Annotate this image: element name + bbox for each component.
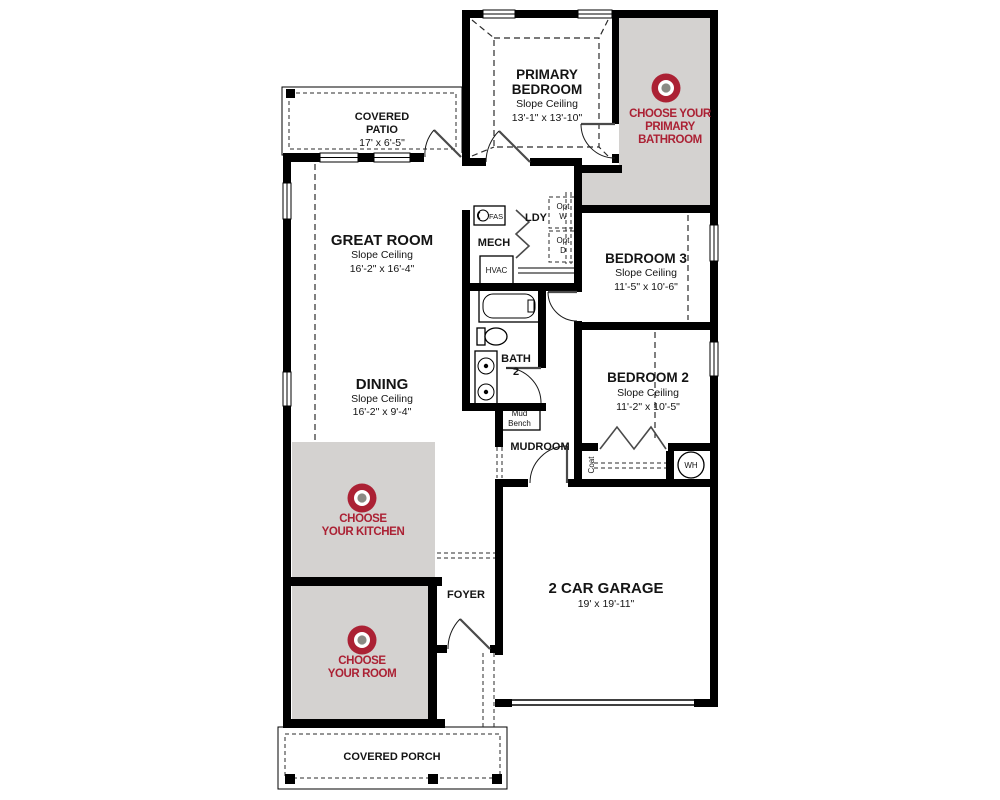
garage-name: 2 CAR GARAGE bbox=[548, 580, 663, 597]
bedroom3-name: BEDROOM 3 bbox=[605, 251, 687, 266]
dining-name: DINING bbox=[356, 376, 409, 393]
svg-text:Slope Ceiling: Slope Ceiling bbox=[351, 249, 413, 261]
svg-text:Slope Ceiling: Slope Ceiling bbox=[516, 98, 578, 110]
water-heater-label: WH bbox=[684, 461, 698, 470]
toilet-bowl bbox=[485, 328, 507, 345]
mud-bench-label: Mud bbox=[512, 409, 528, 418]
vanity bbox=[475, 351, 497, 408]
great-room-dims: 16'-2" x 16'-4" bbox=[350, 263, 415, 275]
bedroom2-label: BEDROOM 2 Slope Ceiling 11'-2" x 10'-5" bbox=[607, 370, 689, 413]
option-kitchen-text: CHOOSE bbox=[339, 513, 387, 525]
porch-post bbox=[285, 774, 295, 784]
covered-patio-name: COVERED bbox=[355, 111, 409, 123]
option-primary-bathroom-text: CHOOSE YOUR bbox=[629, 108, 712, 120]
svg-text:Bench: Bench bbox=[508, 419, 531, 428]
floor-plan-canvas: COVERED PATIO 17' x 6'-5" PRIMARY BEDROO… bbox=[0, 0, 1000, 800]
svg-text:YOUR ROOM: YOUR ROOM bbox=[328, 668, 397, 680]
dining-dims: 16'-2" x 9'-4" bbox=[353, 406, 412, 418]
bath2-door bbox=[506, 368, 541, 403]
svg-text:PATIO: PATIO bbox=[366, 124, 398, 136]
patio-post bbox=[286, 89, 295, 98]
garage-dims: 19' x 19'-11" bbox=[578, 598, 635, 610]
fixture-labels: FAS HVAC Opt W Opt D Mud Bench Coat WH bbox=[486, 202, 698, 473]
window bbox=[283, 372, 291, 406]
target-icon bbox=[348, 484, 377, 513]
garage-label: 2 CAR GARAGE 19' x 19'-11" bbox=[548, 580, 663, 610]
coat-closet-label: Coat bbox=[587, 456, 596, 474]
great-room-label: GREAT ROOM Slope Ceiling 16'-2" x 16'-4" bbox=[331, 232, 433, 275]
front-door bbox=[448, 619, 490, 649]
primary-bedroom-label: PRIMARY BEDROOM Slope Ceiling 13'-1" x 1… bbox=[512, 67, 583, 124]
primary-bathroom-door bbox=[581, 124, 615, 158]
svg-text:YOUR KITCHEN: YOUR KITCHEN bbox=[322, 526, 405, 538]
porch-post bbox=[428, 774, 438, 784]
floor-plan-svg: COVERED PATIO 17' x 6'-5" PRIMARY BEDROO… bbox=[0, 0, 1000, 800]
covered-porch-label: COVERED PORCH bbox=[343, 751, 440, 763]
covered-patio-dims: 17' x 6'-5" bbox=[359, 137, 405, 149]
opt-washer-label: Opt bbox=[557, 202, 571, 211]
svg-text:PRIMARY: PRIMARY bbox=[645, 121, 696, 133]
svg-text:BATHROOM: BATHROOM bbox=[638, 134, 702, 146]
bath2-fixtures bbox=[475, 290, 539, 408]
bedroom3-label: BEDROOM 3 Slope Ceiling 11'-5" x 10'-6" bbox=[605, 251, 687, 293]
porch-post bbox=[492, 774, 502, 784]
svg-text:Slope Ceiling: Slope Ceiling bbox=[351, 393, 413, 405]
bedroom2-name: BEDROOM 2 bbox=[607, 370, 689, 385]
bedroom2-dims: 11'-2" x 10'-5" bbox=[616, 401, 680, 413]
mudroom-label: MUDROOM bbox=[510, 441, 569, 453]
bedroom3-door bbox=[548, 292, 577, 321]
great-room-name: GREAT ROOM bbox=[331, 232, 433, 249]
bedroom3-dims: 11'-5" x 10'-6" bbox=[614, 281, 678, 293]
target-icon bbox=[348, 626, 377, 655]
bath2-name: BATH bbox=[501, 353, 531, 365]
mech-label: MECH bbox=[478, 237, 510, 249]
toilet-tank bbox=[477, 328, 485, 345]
svg-text:Slope Ceiling: Slope Ceiling bbox=[617, 387, 679, 399]
option-room-text: CHOOSE bbox=[338, 655, 386, 667]
window bbox=[320, 153, 358, 162]
window bbox=[710, 225, 718, 261]
covered-patio-label: COVERED PATIO 17' x 6'-5" bbox=[355, 111, 409, 149]
primary-bedroom-name: PRIMARY bbox=[516, 67, 578, 82]
svg-text:BEDROOM: BEDROOM bbox=[512, 82, 583, 97]
opt-dryer-label: Opt bbox=[557, 236, 571, 245]
garage-door bbox=[512, 700, 694, 705]
primary-bathroom-zone-fill-ext bbox=[582, 173, 622, 208]
primary-bedroom-dims: 13'-1" x 13'-10" bbox=[512, 112, 583, 124]
svg-text:D: D bbox=[560, 246, 566, 255]
svg-text:Slope Ceiling: Slope Ceiling bbox=[615, 267, 677, 279]
window bbox=[578, 10, 612, 18]
foyer-label: FOYER bbox=[447, 589, 485, 601]
window bbox=[374, 153, 410, 162]
svg-text:W: W bbox=[559, 212, 567, 221]
hvac-label: HVAC bbox=[486, 266, 508, 275]
laundry-label: LDY bbox=[525, 212, 548, 224]
window bbox=[283, 183, 291, 219]
window bbox=[483, 10, 515, 18]
svg-text:2: 2 bbox=[513, 366, 519, 378]
window bbox=[710, 342, 718, 376]
target-icon bbox=[652, 74, 681, 103]
dining-label: DINING Slope Ceiling 16'-2" x 9'-4" bbox=[351, 376, 413, 418]
gas-meter-label: FAS bbox=[489, 212, 503, 221]
